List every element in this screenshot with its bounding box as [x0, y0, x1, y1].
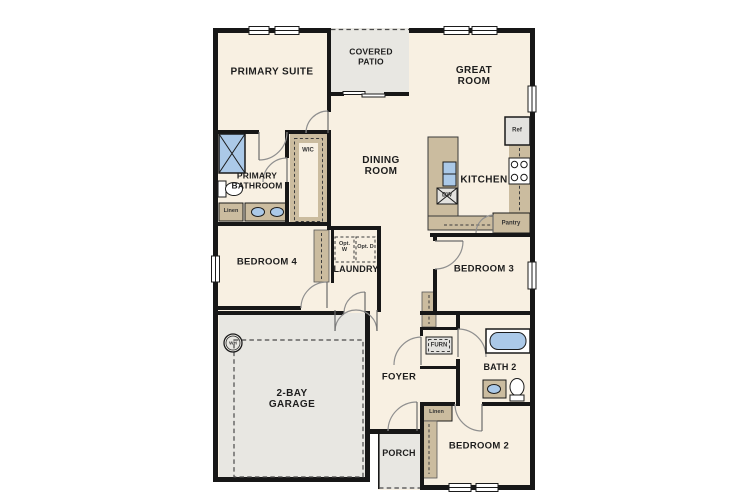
porch-edge [378, 433, 380, 489]
exterior-patch [370, 434, 378, 482]
bathtub [486, 329, 530, 353]
wall [420, 311, 535, 315]
kitchen-sink [443, 162, 456, 186]
wall [213, 28, 218, 482]
toilet-bath2 [510, 379, 524, 402]
window [528, 86, 536, 112]
wall [287, 130, 331, 134]
wall [213, 222, 331, 226]
covered-patio-area [331, 28, 409, 94]
floorplan: PRIMARY SUITE COVERED PATIO GREAT ROOM D… [0, 0, 750, 500]
bed2-linen-closet [421, 404, 452, 421]
wall [331, 230, 334, 283]
primary-vanity [245, 203, 288, 221]
porch-area [378, 433, 420, 489]
wall [331, 226, 381, 230]
wall [213, 311, 344, 315]
shower [219, 134, 245, 173]
bath-linen-closet [219, 203, 243, 221]
wall [430, 233, 535, 237]
exterior-patch [213, 482, 378, 500]
window [275, 27, 299, 35]
window [212, 256, 220, 282]
wall [384, 92, 409, 96]
pantry-cabinet [493, 213, 530, 233]
wall [433, 269, 437, 315]
wall [285, 182, 289, 226]
stove [509, 158, 530, 184]
wall [327, 130, 331, 230]
floorplan-drawing [0, 0, 750, 500]
wall [365, 311, 370, 482]
window [472, 27, 497, 35]
wall [420, 327, 423, 336]
wall [377, 226, 381, 312]
refrigerator [505, 117, 530, 145]
wall [420, 366, 458, 369]
window [449, 484, 471, 492]
wall [327, 28, 331, 96]
wall [368, 429, 424, 434]
window [444, 27, 469, 35]
exterior-patch [378, 490, 420, 500]
wall [420, 402, 455, 406]
garage-door-line [238, 478, 362, 480]
dishwasher [437, 188, 457, 204]
window [528, 262, 536, 289]
toilet-primary [218, 181, 243, 197]
wic-shelving [290, 134, 327, 226]
furnace-box [426, 337, 452, 354]
wall [331, 92, 344, 96]
window [476, 484, 498, 492]
window [249, 27, 269, 35]
wall [482, 402, 535, 406]
wall [327, 96, 331, 112]
bath2-vanity [483, 380, 506, 398]
wall [213, 28, 331, 33]
wall [420, 327, 458, 330]
wall [420, 402, 424, 489]
wall [456, 315, 460, 329]
wall [213, 306, 301, 310]
bedroom4-closet [314, 230, 329, 282]
